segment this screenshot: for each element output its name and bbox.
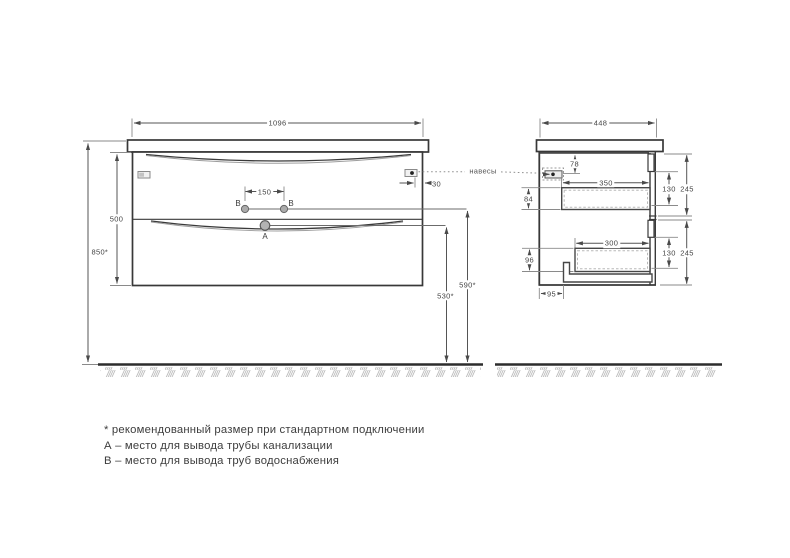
- dim-upper-front-height: 130: [660, 185, 677, 195]
- dim-drain-height: 530*: [435, 291, 456, 301]
- note-point-a: А – место для вывода трубы канализации: [104, 439, 333, 453]
- dim-cabinet-height: 500: [108, 214, 125, 224]
- dim-bottom-back-offset: 95: [545, 289, 558, 299]
- dim-upper-section-height: 245: [678, 185, 695, 195]
- dim-water-supply-height: 590*: [457, 280, 478, 290]
- point-b-right-label: B: [288, 200, 293, 208]
- drawing-linework: [0, 0, 790, 558]
- note-point-b: В – место для вывода труб водоснабжения: [104, 454, 339, 468]
- front-view-drawing: [82, 119, 541, 365]
- dim-lower-section-height: 245: [678, 248, 695, 258]
- floor-hatching: [497, 367, 720, 377]
- dim-lower-drawer-height: 96: [523, 255, 536, 265]
- dim-hanger-from-top: 78: [568, 159, 581, 169]
- point-b-left-label: B: [235, 200, 240, 208]
- floor-hatching: [100, 367, 481, 377]
- dim-hole-spacing: 150: [256, 187, 273, 197]
- dim-lower-drawer-depth: 300: [603, 238, 620, 248]
- dim-upper-drawer-depth: 350: [597, 178, 614, 188]
- floor-line: [98, 365, 722, 378]
- dim-lower-front-height: 130: [660, 248, 677, 258]
- dim-hanger-offset: 30: [432, 180, 441, 188]
- dim-upper-drawer-height: 84: [522, 194, 535, 204]
- note-asterisk: * рекомендованный размер при стандартном…: [104, 423, 425, 437]
- dim-front-width: 1096: [267, 118, 289, 128]
- side-view-drawing: [522, 119, 693, 300]
- technical-drawing: 1096 448 150 30 навесы B B A 500 850* 59…: [0, 0, 790, 558]
- dim-mount-height: 850*: [92, 248, 109, 256]
- dim-side-depth: 448: [592, 118, 609, 128]
- point-a-label: A: [262, 233, 267, 241]
- hangers-label: навесы: [469, 167, 496, 175]
